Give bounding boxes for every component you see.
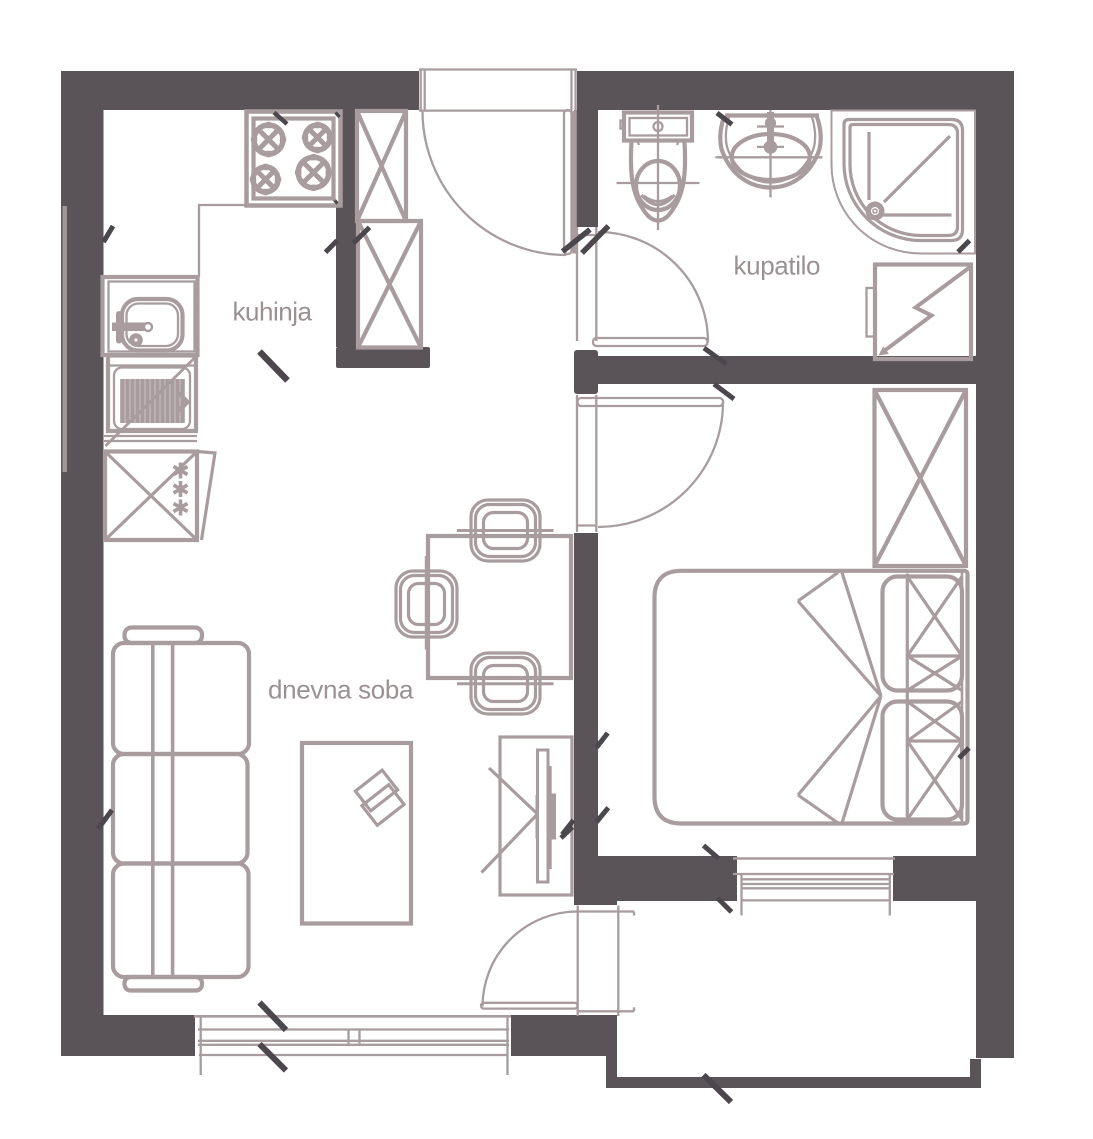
svg-text:kupatilo: kupatilo xyxy=(734,250,821,280)
svg-text:kuhinja: kuhinja xyxy=(233,297,313,327)
svg-text:dnevna soba: dnevna soba xyxy=(268,675,414,705)
